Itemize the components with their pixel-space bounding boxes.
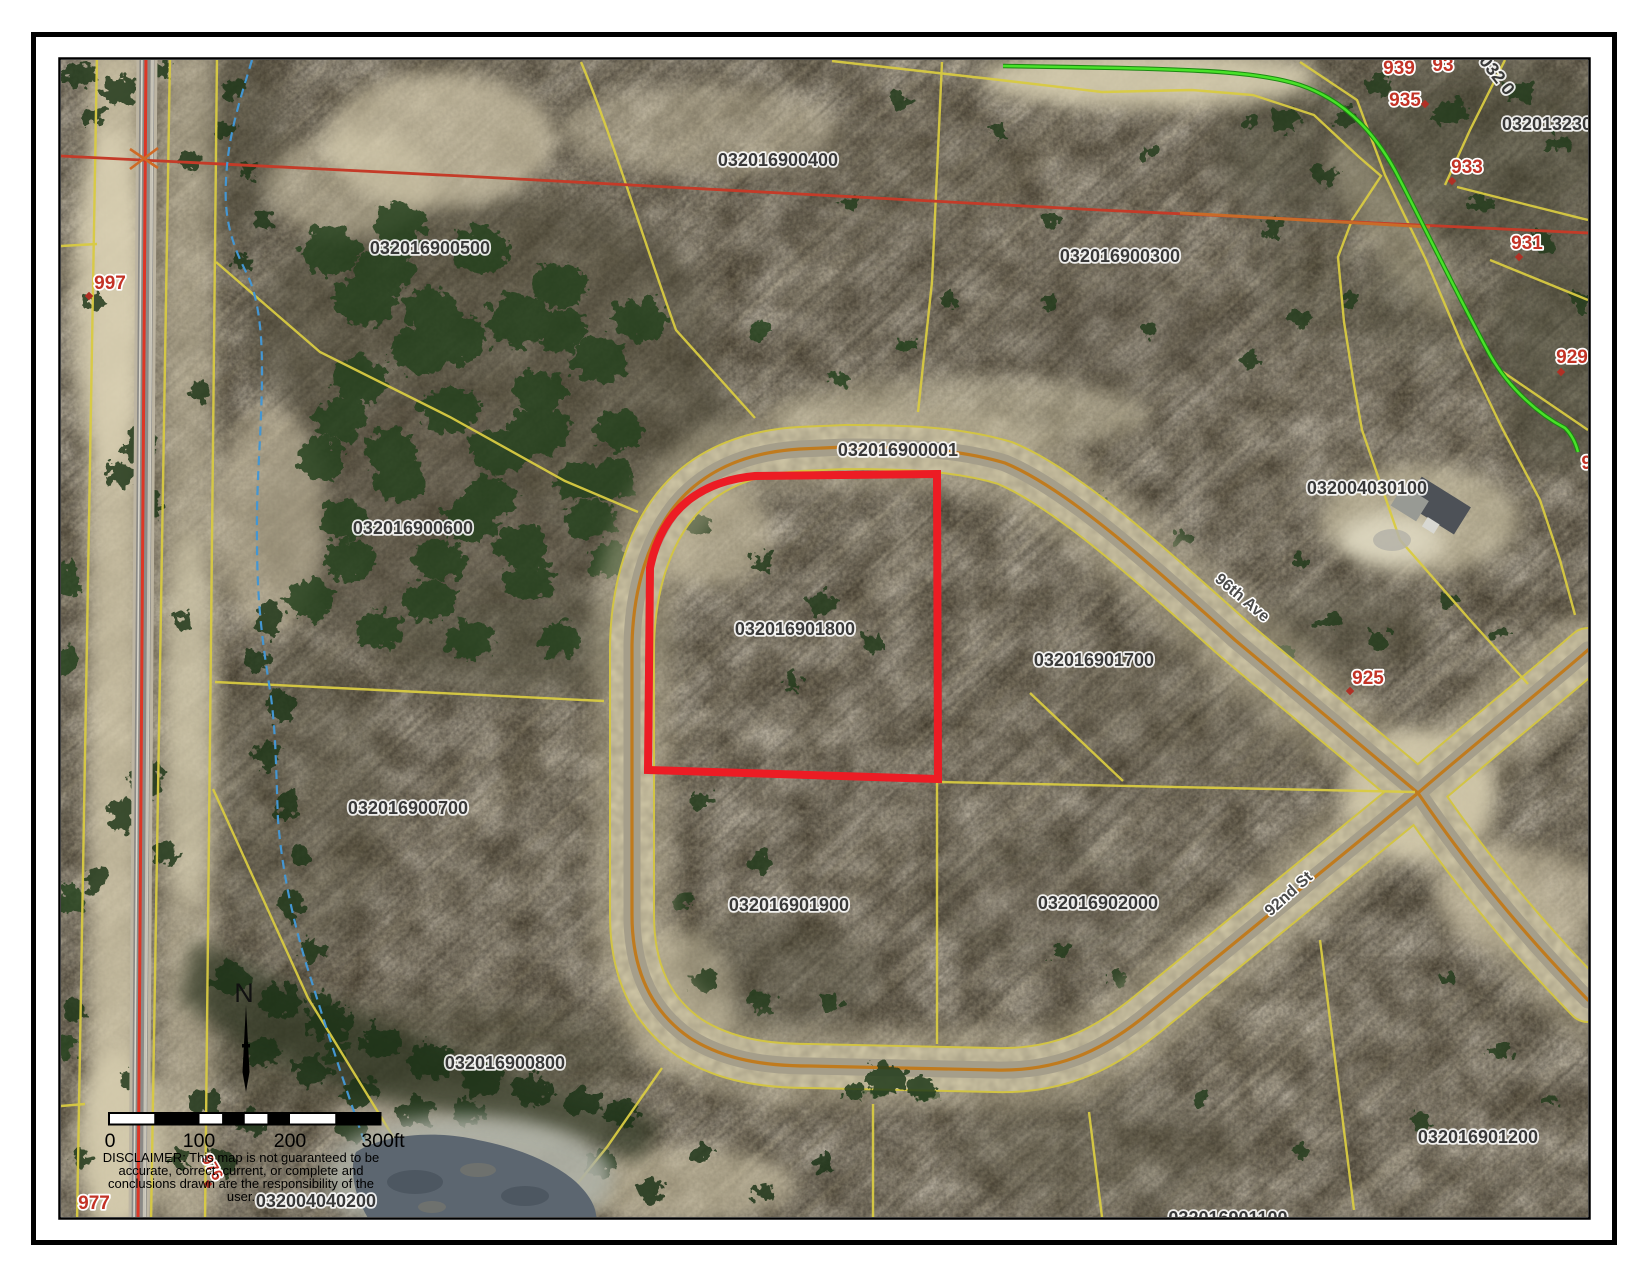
svg-text:032016901900: 032016901900 xyxy=(729,895,849,915)
svg-text:939: 939 xyxy=(1383,58,1415,79)
svg-text:200: 200 xyxy=(274,1130,307,1152)
svg-text:032016902000: 032016902000 xyxy=(1038,893,1158,913)
svg-text:032004030100: 032004030100 xyxy=(1307,478,1427,498)
svg-text:user.: user. xyxy=(227,1189,255,1204)
svg-text:977: 977 xyxy=(78,1193,110,1214)
svg-text:N: N xyxy=(234,978,254,1008)
svg-text:933: 933 xyxy=(1451,157,1483,178)
svg-text:925: 925 xyxy=(1352,668,1384,689)
svg-text:032016900700: 032016900700 xyxy=(348,798,468,818)
svg-text:032016900001: 032016900001 xyxy=(838,440,958,460)
svg-text:032016901200: 032016901200 xyxy=(1418,1127,1538,1147)
svg-text:0320132300: 0320132300 xyxy=(1502,114,1602,134)
svg-text:931: 931 xyxy=(1511,233,1543,254)
svg-text:929: 929 xyxy=(1556,347,1588,368)
svg-text:032016900600: 032016900600 xyxy=(353,518,473,538)
svg-text:032016900500: 032016900500 xyxy=(370,238,490,258)
svg-text:300ft: 300ft xyxy=(361,1130,405,1152)
svg-text:032016901800: 032016901800 xyxy=(735,619,855,639)
svg-text:935: 935 xyxy=(1389,90,1421,111)
svg-text:0: 0 xyxy=(105,1130,116,1152)
svg-text:100: 100 xyxy=(183,1130,216,1152)
svg-text:032016901700: 032016901700 xyxy=(1034,650,1154,670)
svg-text:997: 997 xyxy=(94,273,126,294)
svg-text:032016900300: 032016900300 xyxy=(1060,246,1180,266)
svg-text:032016900400: 032016900400 xyxy=(718,150,838,170)
svg-text:032004040200: 032004040200 xyxy=(256,1191,376,1211)
svg-text:032016900800: 032016900800 xyxy=(445,1053,565,1073)
